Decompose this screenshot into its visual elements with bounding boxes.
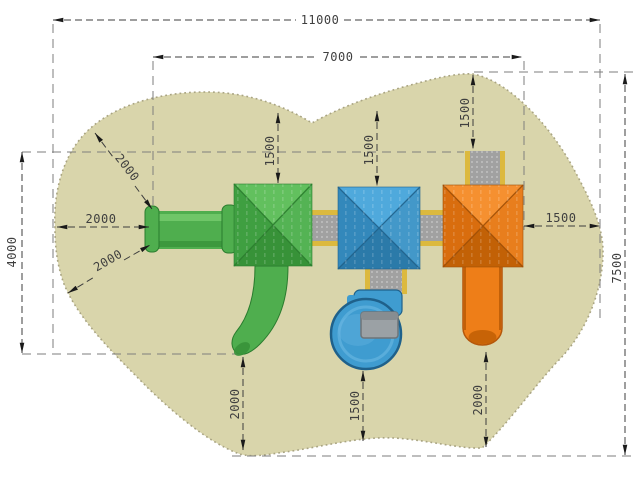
dim-label-total-height: 7500 bbox=[610, 253, 624, 284]
orange-entry-platform bbox=[465, 151, 505, 188]
orange-tower bbox=[443, 185, 523, 267]
bridge-green-blue bbox=[311, 210, 339, 246]
plan-svg: 11000 7000 4000 7500 1500 1500 1500 1500… bbox=[0, 0, 640, 480]
green-crawl-tube bbox=[145, 205, 238, 253]
dim-label-inner-width: 7000 bbox=[323, 50, 354, 64]
blue-tower bbox=[338, 187, 420, 269]
dim-label-top-orange: 1500 bbox=[458, 98, 472, 129]
green-tower bbox=[234, 184, 312, 266]
dim-label-right: 1500 bbox=[546, 211, 577, 225]
dim-label-left-height: 4000 bbox=[5, 237, 19, 268]
dim-label-bottom-blue: 1500 bbox=[348, 391, 362, 422]
dim-label-top-green: 1500 bbox=[263, 136, 277, 167]
dim-label-bottom-orange: 2000 bbox=[471, 385, 485, 416]
dim-label-top-blue: 1500 bbox=[362, 135, 376, 166]
dim-label-left-mid: 2000 bbox=[86, 212, 117, 226]
dim-label-total-width: 11000 bbox=[301, 13, 340, 27]
dim-label-bottom-green: 2000 bbox=[228, 389, 242, 420]
playground-plan-drawing: 11000 7000 4000 7500 1500 1500 1500 1500… bbox=[0, 0, 640, 480]
orange-slide bbox=[463, 261, 502, 345]
